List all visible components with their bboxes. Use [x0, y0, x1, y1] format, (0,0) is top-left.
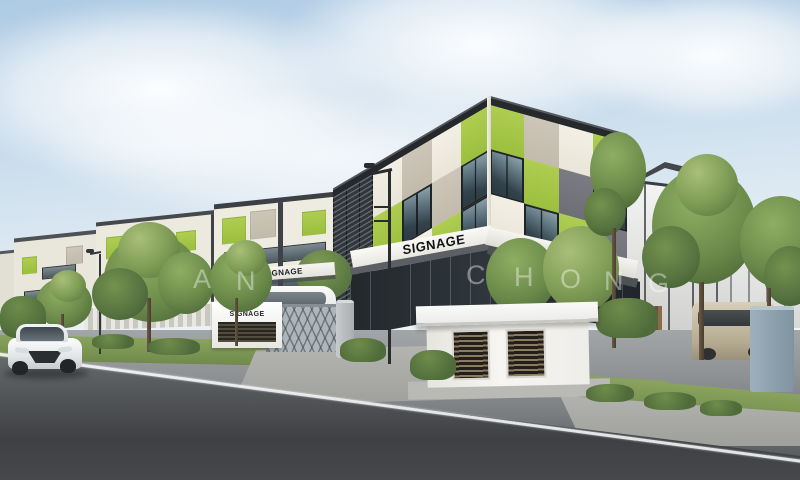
tree-canopy: [50, 270, 86, 302]
street-lamp-head: [86, 249, 94, 253]
watermark-letter: C: [466, 260, 487, 291]
watermark-letter: N: [236, 266, 257, 297]
shrub: [596, 298, 658, 338]
car-wheel: [12, 361, 28, 375]
facade-panel: [22, 256, 37, 275]
shrub: [644, 392, 696, 410]
utility-booth: [750, 306, 794, 392]
white-car: [8, 324, 84, 378]
facade-panel: [250, 209, 276, 240]
watermark-letter: A: [193, 264, 212, 295]
tree-canopy: [92, 268, 148, 320]
facade-panel: [66, 245, 83, 265]
watermark-letter: H: [514, 262, 535, 293]
shrub: [586, 384, 634, 402]
watermark-letter: O: [560, 264, 582, 295]
tree-canopy: [584, 188, 626, 236]
shrub: [148, 338, 200, 355]
industrial-park-rendering: SIGNAGE SIGNAGE SIGNAGE: [0, 0, 800, 480]
gate-sign-louver: [218, 322, 276, 342]
watermark-letter: N: [604, 266, 625, 297]
shrub: [410, 350, 456, 380]
lamp-banner-bracket: [374, 220, 389, 222]
tree-trunk: [235, 298, 238, 346]
facade-panel: [302, 210, 326, 237]
shrub: [340, 338, 386, 362]
signage-text-gate: SIGNAGE: [212, 311, 282, 318]
lamp-banner-bracket: [374, 206, 389, 208]
street-lamp-head: [364, 163, 375, 168]
street-lamp-pole: [388, 170, 391, 364]
guard-house-louver-window: [451, 330, 490, 381]
tree-trunk: [699, 282, 704, 360]
guard-house-louver-window: [505, 329, 546, 379]
shrub: [92, 334, 134, 349]
shrub: [700, 400, 742, 416]
watermark-letter: G: [648, 268, 670, 299]
car-wheel: [60, 359, 76, 373]
car-windshield: [20, 327, 64, 341]
tree-canopy: [676, 154, 738, 216]
